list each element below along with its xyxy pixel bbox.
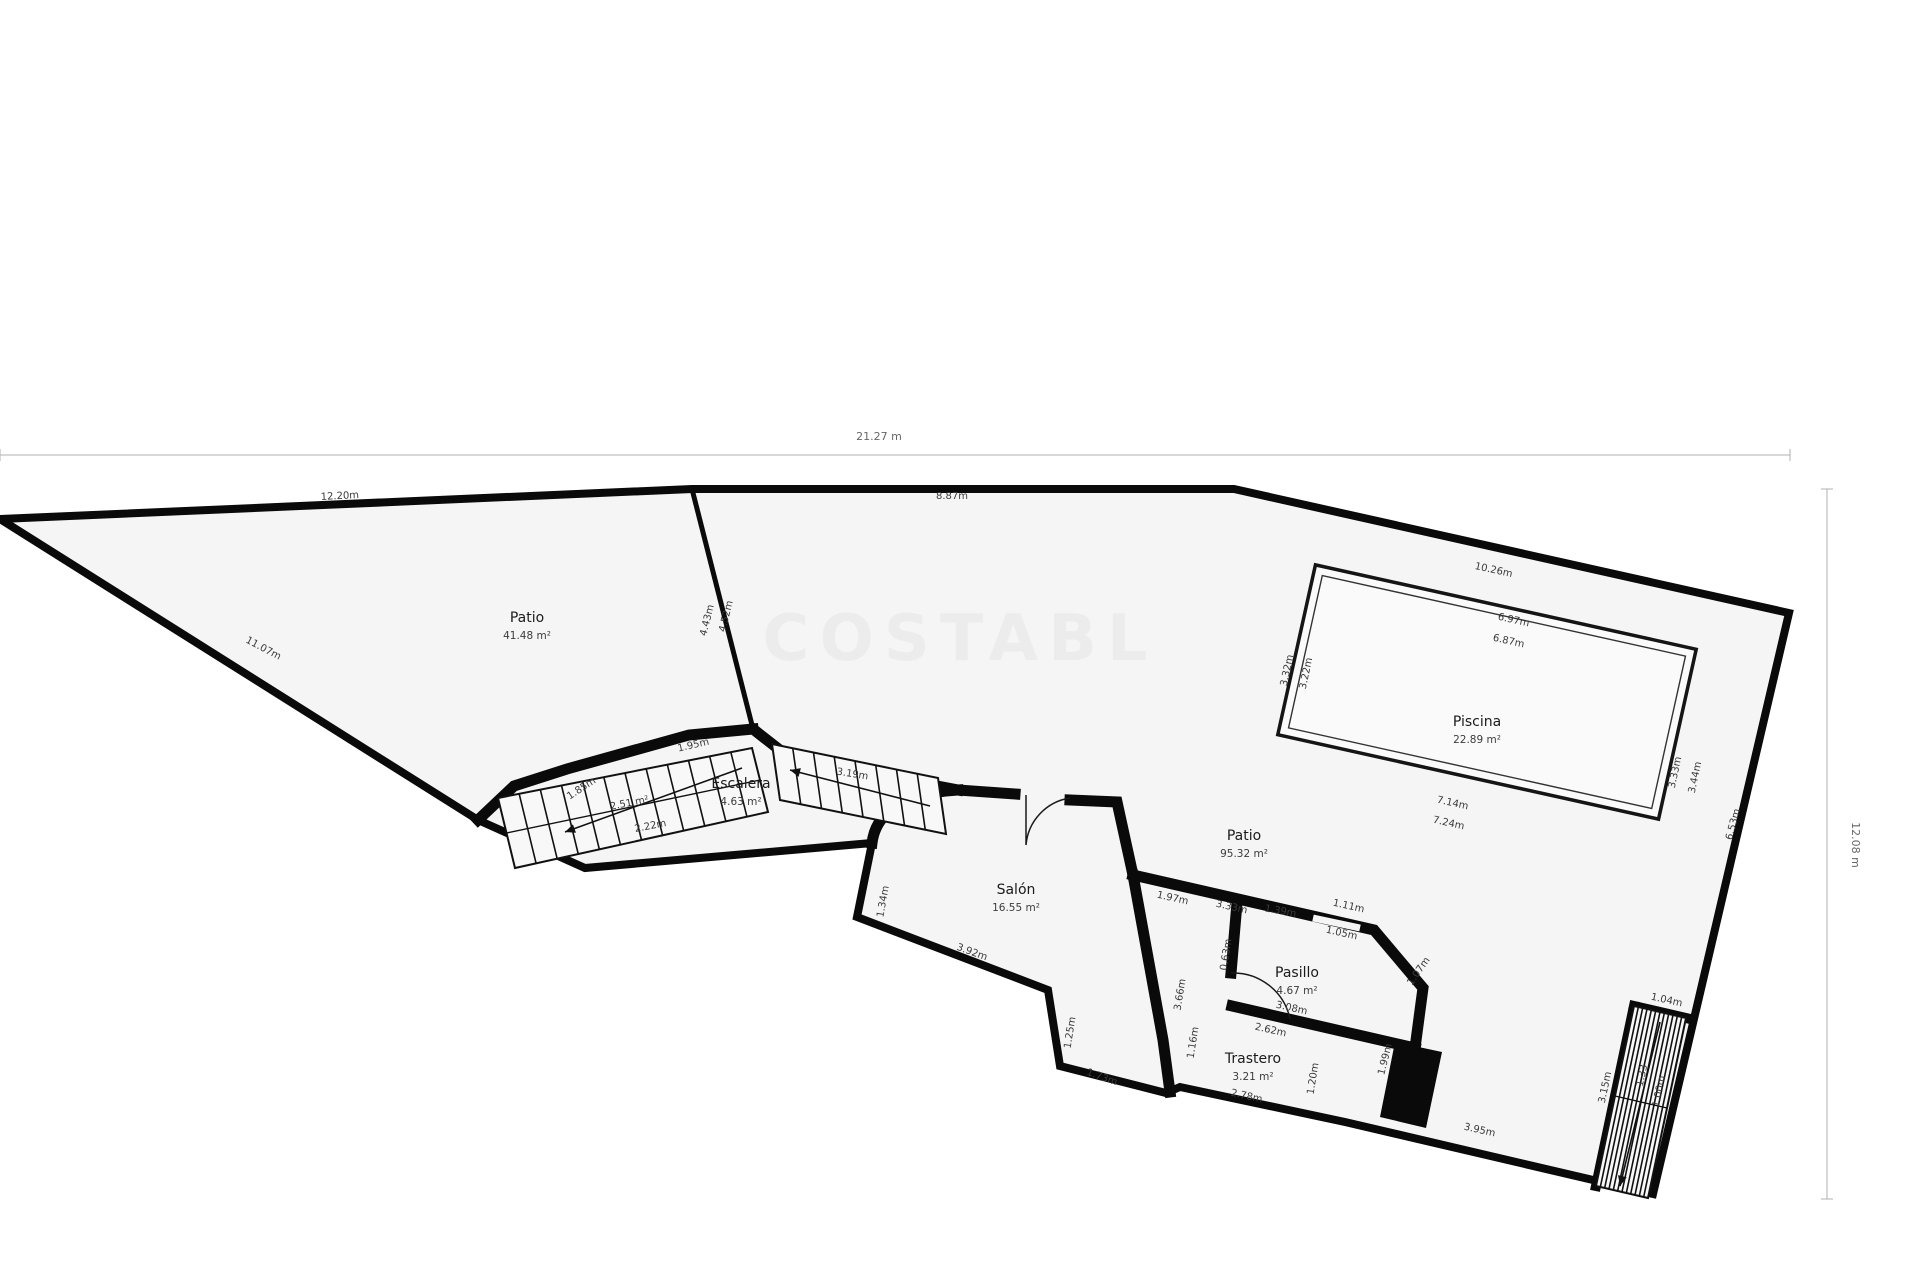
room-label-area: 16.55 m²	[992, 902, 1040, 914]
room-label-area: 4.63 m²	[720, 796, 761, 808]
dimension-label: 12.20m	[320, 490, 359, 503]
right-measure-line	[1821, 489, 1833, 1199]
room-label-name: Pasillo	[1275, 965, 1319, 981]
room-label-area: 4.67 m²	[1276, 985, 1317, 997]
overall-height-label: 12.08 m	[1849, 822, 1862, 868]
dimension-label: 8.87m	[936, 491, 968, 502]
room-label-area: 95.32 m²	[1220, 848, 1268, 860]
room-label-name: Trastero	[1224, 1051, 1281, 1067]
room-label-area: 3.21 m²	[1232, 1071, 1273, 1083]
floor-plan-page: 21.27 m 12.08 m COSTABL Patio41.48 m²Esc…	[0, 0, 1920, 1280]
watermark-text: COSTABL	[762, 602, 1157, 676]
floor-plan-svg: 21.27 m 12.08 m COSTABL Patio41.48 m²Esc…	[0, 0, 1920, 1280]
room-label-name: Piscina	[1453, 714, 1501, 730]
room-label-name: Patio	[510, 610, 544, 626]
room-label-name: Escalera	[711, 776, 770, 792]
room-label-name: Salón	[997, 882, 1036, 898]
overall-width-label: 21.27 m	[856, 430, 902, 443]
room-label-area: 41.48 m²	[503, 630, 551, 642]
plot-boundary	[0, 489, 1789, 1194]
room-label-area: 22.89 m²	[1453, 734, 1501, 746]
wall-salon-door-left	[958, 790, 1015, 794]
top-measure-line	[0, 449, 1790, 461]
room-label-name: Patio	[1227, 828, 1261, 844]
